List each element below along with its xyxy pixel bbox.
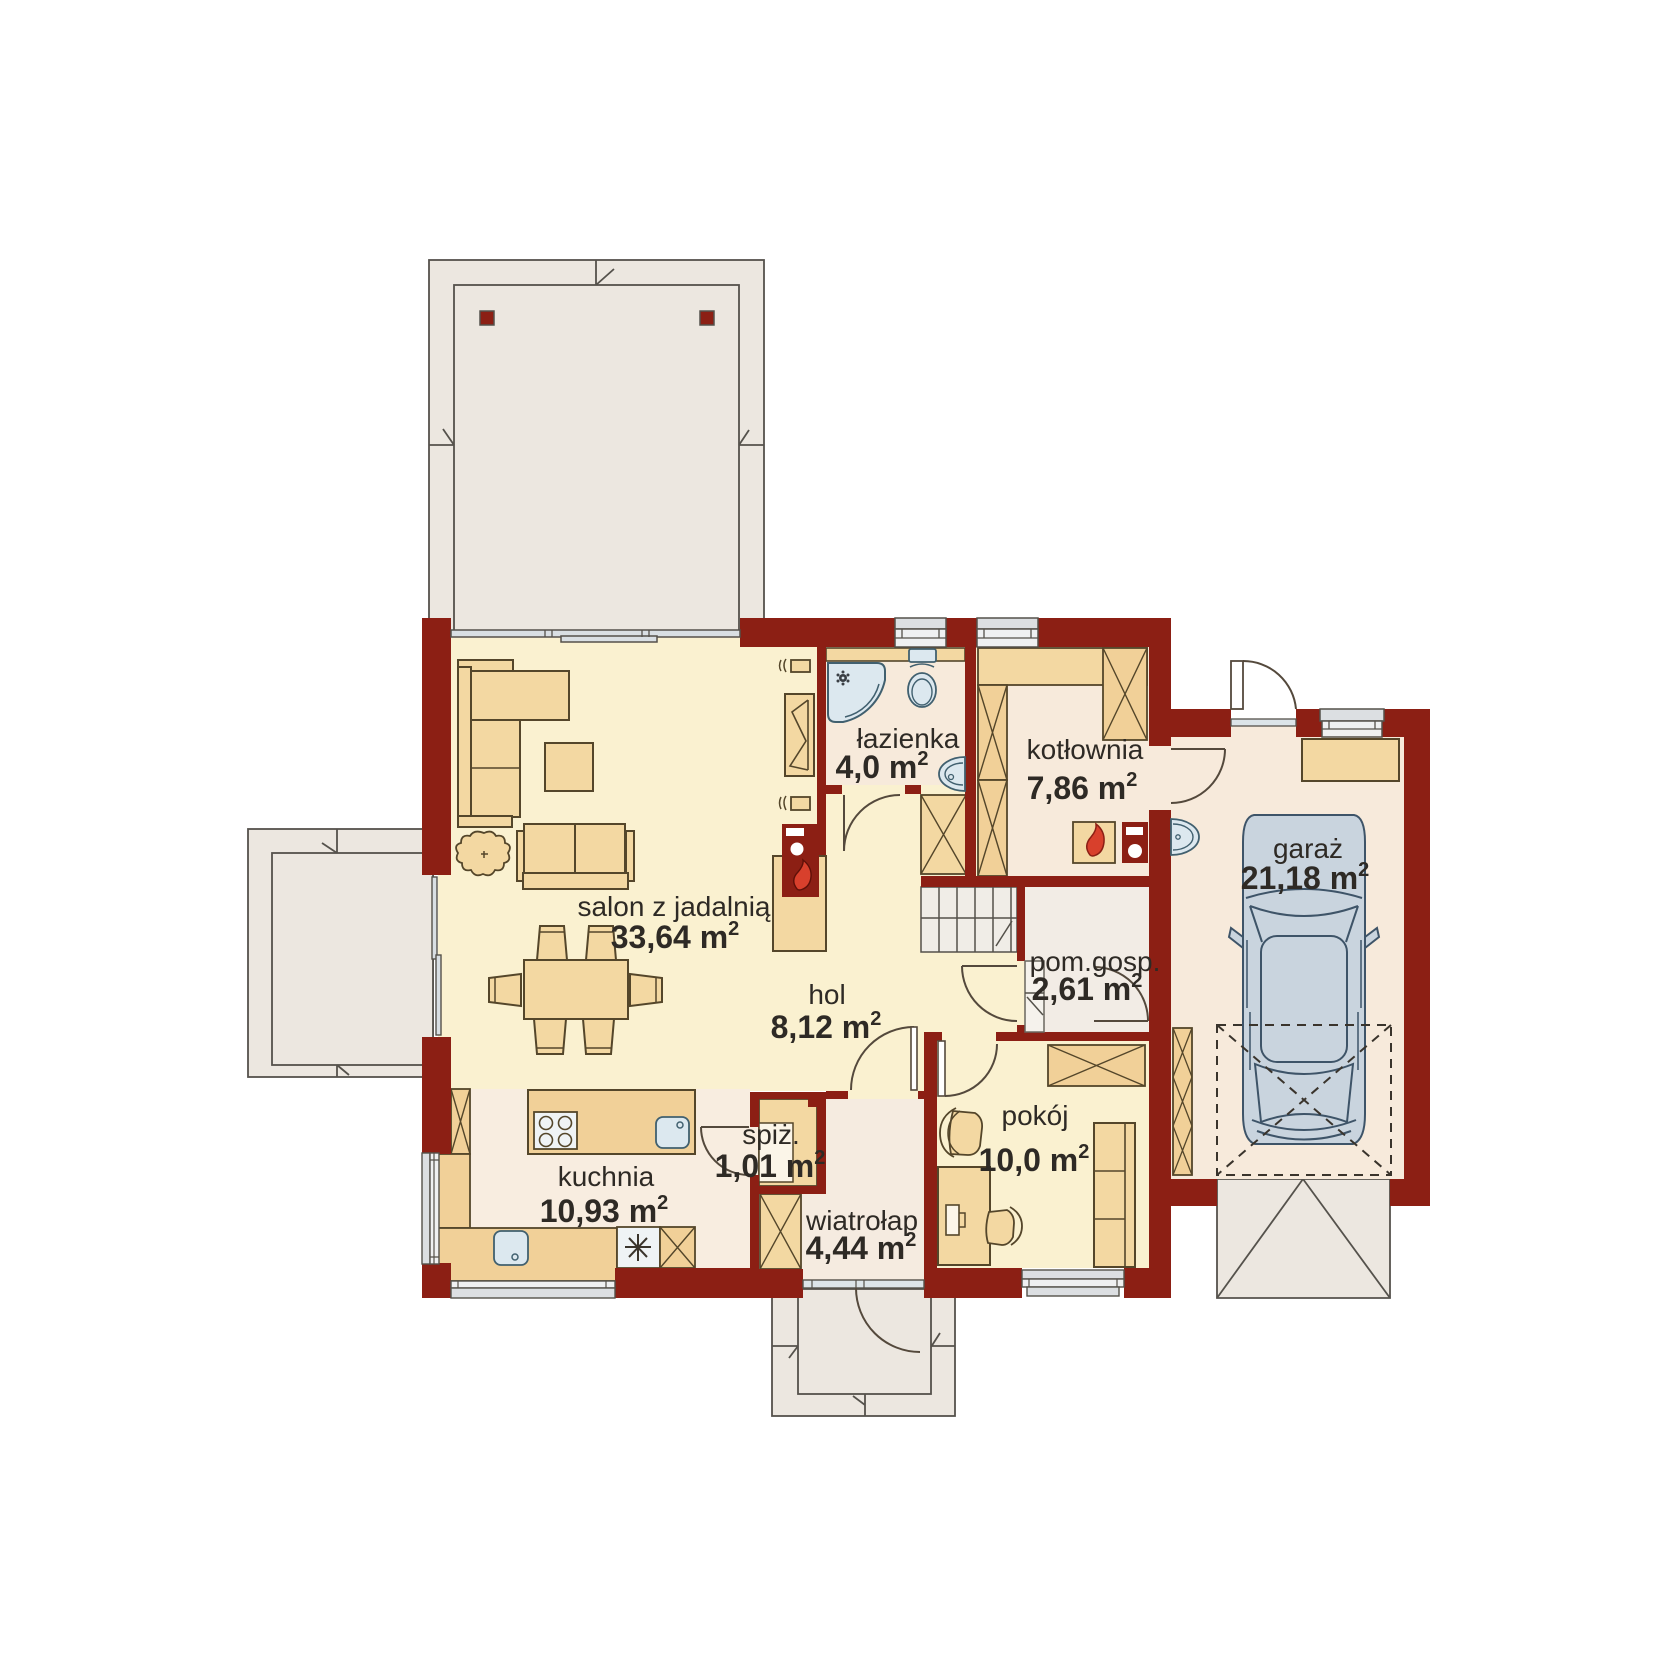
svg-text:kuchnia: kuchnia [558,1161,655,1192]
svg-text:salon z jadalnią: salon z jadalnią [577,891,770,922]
svg-text:2,61 m2: 2,61 m2 [1032,970,1143,1007]
svg-text:8,12 m2: 8,12 m2 [771,1008,882,1045]
svg-text:kotłownia: kotłownia [1027,734,1144,765]
svg-text:7,86 m2: 7,86 m2 [1027,769,1138,806]
svg-text:1,01 m2: 1,01 m2 [715,1147,826,1184]
svg-text:10,93 m2: 10,93 m2 [540,1192,669,1229]
svg-text:pokój: pokój [1002,1100,1069,1131]
svg-text:21,18 m2: 21,18 m2 [1241,859,1370,896]
svg-text:10,0 m2: 10,0 m2 [979,1141,1090,1178]
svg-text:4,44 m2: 4,44 m2 [806,1229,917,1266]
svg-text:33,64 m2: 33,64 m2 [611,918,740,955]
svg-text:4,0 m2: 4,0 m2 [836,748,929,785]
svg-text:hol: hol [808,979,845,1010]
svg-text:spiż.: spiż. [742,1119,800,1150]
